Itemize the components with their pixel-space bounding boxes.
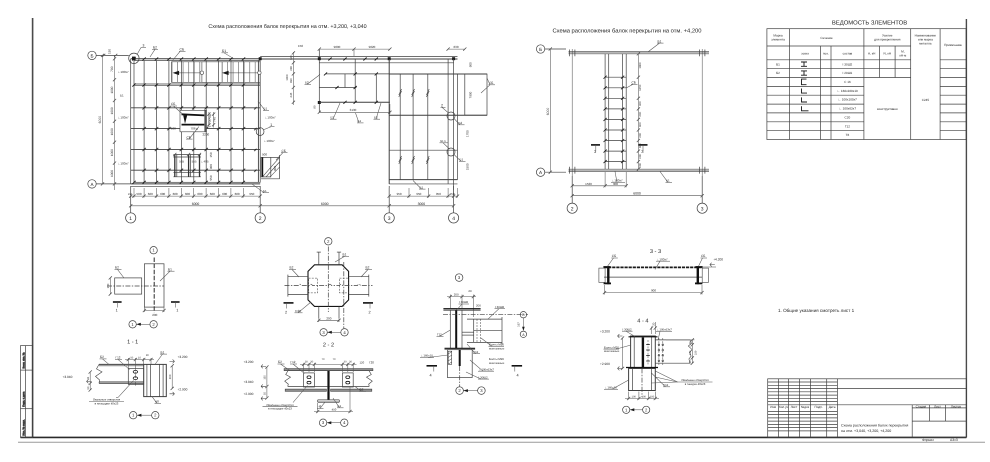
- svg-text:120: 120: [360, 360, 365, 364]
- svg-text:в площадке 40х23: в площадке 40х23: [268, 407, 292, 411]
- svg-text:А3х3: А3х3: [950, 438, 958, 442]
- svg-text:4: 4: [430, 374, 432, 378]
- svg-text:∟100х7: ∟100х7: [118, 70, 129, 74]
- svg-text:600: 600: [638, 111, 642, 116]
- svg-text:Б1: Б1: [120, 94, 124, 98]
- svg-text:Б1: Б1: [222, 49, 226, 53]
- svg-text:монтажные: монтажные: [604, 349, 620, 353]
- svg-text:645: 645: [289, 92, 293, 97]
- svg-text:Лист: Лист: [934, 404, 941, 408]
- svg-text:200: 200: [454, 293, 459, 297]
- svg-text:Б1: Б1: [658, 39, 662, 43]
- svg-text:Б1: Б1: [460, 158, 464, 162]
- svg-text:300: 300: [168, 374, 172, 379]
- svg-text:эскиз: эскиз: [801, 52, 809, 56]
- svg-text:Подп. и дата: Подп. и дата: [23, 391, 26, 407]
- svg-text:в гнездах 40х23: в гнездах 40х23: [685, 382, 706, 386]
- svg-text:600: 600: [638, 154, 642, 159]
- svg-text:∟485: ∟485: [201, 160, 209, 164]
- svg-text:1900: 1900: [638, 62, 642, 69]
- svg-text:Подп.: Подп.: [814, 405, 822, 409]
- svg-text:9620: 9620: [369, 45, 376, 49]
- svg-text:Схема расположения балок перек: Схема расположения балок перекрытия на о…: [208, 24, 366, 30]
- svg-text:I 30Ш2: I 30Ш2: [459, 300, 468, 304]
- svg-text:Г12: Г12: [664, 383, 669, 387]
- svg-text:+2.900: +2.900: [600, 362, 610, 366]
- svg-text:1000: 1000: [110, 128, 114, 135]
- svg-text:∟100х63х7: ∟100х63х7: [657, 328, 673, 332]
- svg-text:450: 450: [332, 408, 337, 412]
- svg-text:Б2: Б2: [153, 45, 157, 49]
- svg-text:∟ 100х100х7: ∟ 100х100х7: [838, 98, 857, 102]
- svg-text:140: 140: [289, 55, 293, 60]
- svg-text:Лист: Лист: [791, 405, 798, 409]
- svg-text:Изм: Изм: [770, 405, 776, 409]
- svg-text:1500: 1500: [465, 163, 469, 170]
- svg-text:600: 600: [638, 163, 642, 168]
- svg-text:6000: 6000: [633, 192, 641, 196]
- svg-text:1: 1: [129, 216, 132, 222]
- svg-text:∟100х7: ∟100х7: [264, 139, 275, 143]
- svg-text:Б: Б: [539, 47, 542, 52]
- svg-text:Т8: Т8: [846, 133, 850, 137]
- svg-text:2: 2: [369, 311, 371, 315]
- svg-text:150: 150: [209, 152, 213, 157]
- svg-text:140: 140: [689, 350, 692, 355]
- svg-text:1: 1: [116, 309, 118, 313]
- svg-text:3: 3: [143, 44, 145, 48]
- svg-text:220: 220: [695, 350, 698, 355]
- svg-text:3: 3: [388, 216, 391, 222]
- svg-text:600: 600: [638, 101, 642, 106]
- svg-text:1: 1: [176, 309, 178, 313]
- svg-text:Б2: Б2: [290, 266, 294, 270]
- svg-text:20: 20: [468, 289, 472, 293]
- svg-text:2: 2: [259, 216, 262, 222]
- svg-text:Г20: Г20: [369, 360, 374, 364]
- svg-text:550: 550: [209, 175, 213, 180]
- svg-text:+3.200: +3.200: [244, 360, 254, 364]
- svg-text:Стадия: Стадия: [916, 404, 927, 408]
- svg-text:Б: Б: [90, 53, 93, 58]
- svg-text:СБ: СБ: [171, 102, 175, 106]
- svg-text:6000: 6000: [192, 202, 200, 206]
- svg-text:20: 20: [652, 322, 656, 326]
- svg-text:2200: 2200: [203, 132, 210, 136]
- svg-text:N, кН: N, кН: [884, 52, 892, 56]
- svg-text:I 30Ш2: I 30Ш2: [495, 305, 504, 309]
- svg-text:Г12: Г12: [291, 360, 296, 364]
- svg-text:Дата: Дата: [829, 405, 836, 409]
- svg-text:+4.200: +4.200: [713, 257, 723, 261]
- svg-text:167: 167: [517, 322, 521, 327]
- svg-text:Схема расположения балок перек: Схема расположения балок перекрытия на о…: [552, 28, 701, 35]
- svg-text:Б1: Б1: [161, 350, 165, 354]
- svg-text:I 30Ш2: I 30Ш2: [843, 62, 853, 66]
- svg-text:монтажные: монтажные: [489, 346, 505, 350]
- svg-text:Б1: Б1: [264, 107, 268, 111]
- svg-text:1000: 1000: [110, 107, 114, 114]
- svg-text:1000: 1000: [110, 170, 114, 177]
- svg-text:в площадке 40х23: в площадке 40х23: [95, 401, 119, 405]
- svg-text:706▲: 706▲: [191, 127, 199, 131]
- svg-text:2: 2: [441, 104, 443, 108]
- svg-text:4: 4: [452, 216, 455, 222]
- svg-text:740: 740: [212, 117, 216, 122]
- svg-text:Б2: Б2: [366, 266, 370, 270]
- svg-text:Б1: Б1: [343, 253, 347, 257]
- svg-text:600: 600: [197, 192, 202, 196]
- svg-text:1000: 1000: [110, 149, 114, 156]
- svg-text:+2.900: +2.900: [178, 387, 188, 391]
- svg-text:150: 150: [449, 192, 454, 196]
- svg-text:+3.040: +3.040: [63, 375, 73, 379]
- svg-text:ВЕДОМОСТЬ ЗЛЕМЕНТОВ: ВЕДОМОСТЬ ЗЛЕМЕНТОВ: [832, 19, 907, 26]
- svg-text:+3.200: +3.200: [178, 355, 188, 359]
- svg-text:690: 690: [289, 78, 293, 83]
- svg-text:Листов: Листов: [951, 404, 961, 408]
- svg-text:1530: 1530: [585, 182, 592, 186]
- svg-text:Г12: Г12: [116, 356, 121, 360]
- svg-text:∟100х7: ∟100х7: [118, 116, 129, 120]
- svg-text:+3.200: +3.200: [600, 330, 610, 334]
- svg-text:∟100х7: ∟100х7: [657, 257, 668, 261]
- svg-text:7900: 7900: [468, 91, 472, 98]
- svg-text:950: 950: [436, 192, 441, 196]
- svg-text:Б2: Б2: [459, 121, 463, 125]
- svg-text:4: 4: [517, 374, 519, 378]
- svg-text:Взам. инв. №: Взам. инв. №: [23, 352, 26, 368]
- svg-text:Б2: Б2: [305, 81, 309, 85]
- svg-text:Примечание: Примечание: [944, 43, 962, 47]
- svg-text:∟ 100х63х7: ∟ 100х63х7: [839, 107, 857, 111]
- svg-text:I 30Ш2: I 30Ш2: [623, 327, 632, 331]
- svg-text:кН·м: кН·м: [900, 54, 907, 58]
- svg-text:950: 950: [397, 192, 402, 196]
- svg-text:1000: 1000: [110, 86, 114, 93]
- svg-text:630: 630: [453, 45, 458, 49]
- svg-text:Г12: Г12: [845, 124, 850, 128]
- svg-text:6000: 6000: [321, 202, 329, 206]
- svg-text:1250: 1250: [638, 84, 642, 91]
- svg-text:1300: 1300: [285, 74, 289, 81]
- svg-text:150: 150: [298, 44, 303, 48]
- svg-text:∟100х7: ∟100х7: [265, 115, 276, 119]
- svg-text:1700: 1700: [465, 130, 469, 137]
- svg-text:9600: 9600: [334, 45, 341, 49]
- svg-text:200: 200: [152, 313, 157, 317]
- svg-text:+3.040: +3.040: [244, 380, 254, 384]
- svg-text:600: 600: [185, 192, 190, 196]
- svg-text:900: 900: [209, 164, 213, 169]
- svg-text:600: 600: [210, 192, 215, 196]
- svg-text:500: 500: [171, 127, 176, 131]
- svg-text:3: 3: [701, 206, 704, 212]
- svg-text:135: 135: [264, 375, 267, 380]
- svg-text:950: 950: [249, 192, 254, 196]
- svg-text:100: 100: [650, 396, 655, 399]
- svg-text:1: 1: [270, 123, 272, 127]
- svg-text:150: 150: [108, 49, 112, 54]
- svg-text:Б2: Б2: [100, 355, 104, 359]
- svg-text:Б2: Б2: [278, 360, 282, 364]
- svg-text:∟100х7: ∟100х7: [118, 161, 129, 165]
- svg-text:С245: С245: [922, 98, 930, 102]
- svg-text:2 - 2: 2 - 2: [323, 343, 334, 349]
- svg-text:3130: 3130: [350, 108, 357, 112]
- svg-text:150: 150: [106, 283, 110, 288]
- svg-text:монтажные: монтажные: [489, 361, 505, 365]
- svg-text:Н8: Н8: [318, 405, 322, 409]
- svg-text:С 16: С 16: [844, 80, 851, 84]
- svg-text:900: 900: [613, 182, 618, 186]
- svg-text:СБ: СБ: [180, 48, 185, 52]
- svg-text:Формат: Формат: [922, 438, 934, 442]
- svg-text:6000: 6000: [98, 116, 102, 124]
- svg-text:200: 200: [476, 304, 481, 308]
- svg-text:4 - 4: 4 - 4: [637, 318, 648, 324]
- svg-text:СБ: СБ: [612, 254, 616, 258]
- svg-text:900: 900: [468, 62, 472, 67]
- svg-text:555: 555: [192, 160, 197, 164]
- svg-text:2: 2: [571, 206, 574, 212]
- svg-text:поз.: поз.: [823, 52, 829, 56]
- svg-text:600: 600: [148, 192, 153, 196]
- svg-text:100: 100: [642, 396, 647, 399]
- svg-text:Б1: Б1: [776, 62, 780, 66]
- svg-text:555: 555: [179, 160, 184, 164]
- svg-text:500: 500: [262, 153, 267, 157]
- svg-text:200: 200: [326, 316, 331, 320]
- svg-text:Сечение: Сечение: [820, 36, 833, 40]
- svg-text:900: 900: [273, 166, 277, 171]
- svg-text:по 1: по 1: [440, 139, 446, 143]
- svg-text:I 20Ш1: I 20Ш1: [843, 71, 853, 75]
- svg-text:конструктивно: конструктивно: [877, 107, 898, 111]
- svg-text:80: 80: [313, 105, 317, 109]
- svg-text:на отм. +3,040, +3,200, +4,200: на отм. +3,040, +3,200, +4,200: [841, 429, 891, 433]
- svg-text:№док: №док: [801, 405, 810, 409]
- svg-text:СБ: СБ: [282, 149, 286, 153]
- svg-text:1. Общие указания смотреть лис: 1. Общие указания смотреть лист 1: [778, 308, 855, 313]
- svg-text:Инв. № подл.: Инв. № подл.: [23, 419, 26, 435]
- svg-text:950: 950: [416, 192, 421, 196]
- svg-text:Б2: Б2: [776, 71, 780, 75]
- svg-text:600: 600: [638, 133, 642, 138]
- svg-text:600: 600: [638, 122, 642, 127]
- svg-text:Б2: Б2: [115, 266, 119, 270]
- svg-text:100: 100: [632, 396, 637, 399]
- svg-text:∟ 160х160х10: ∟ 160х160х10: [837, 89, 858, 93]
- svg-text:элемента: элемента: [771, 38, 785, 42]
- svg-text:Кол.уч: Кол.уч: [779, 405, 789, 409]
- svg-text:6000: 6000: [546, 108, 550, 116]
- svg-text:500: 500: [136, 192, 141, 196]
- svg-text:1 - 1: 1 - 1: [127, 340, 138, 346]
- svg-text:металла: металла: [919, 42, 931, 46]
- svg-text:150: 150: [128, 193, 133, 196]
- svg-text:600: 600: [173, 192, 178, 196]
- svg-text:Схема расположения балок перек: Схема расположения балок перекрытия: [841, 424, 908, 428]
- svg-text:состав: состав: [843, 52, 853, 56]
- svg-text:Б2: Б2: [360, 388, 364, 392]
- svg-text:С20: С20: [845, 115, 851, 119]
- svg-text:Г12: Г12: [437, 333, 442, 337]
- svg-text:А, кН: А, кН: [868, 52, 875, 56]
- svg-text:СБ: СБ: [701, 254, 705, 258]
- svg-text:900: 900: [651, 289, 656, 293]
- svg-text:600: 600: [222, 192, 227, 196]
- svg-text:2: 2: [285, 311, 287, 315]
- svg-text:+2.900: +2.900: [244, 392, 254, 396]
- svg-text:для прикрепления: для прикрепления: [874, 38, 901, 42]
- svg-text:600: 600: [160, 192, 165, 196]
- svg-text:Б1: Б1: [168, 267, 172, 271]
- svg-text:690: 690: [289, 66, 293, 71]
- svg-text:600: 600: [235, 192, 240, 196]
- svg-text:СБ: СБ: [632, 81, 636, 85]
- svg-text:700: 700: [110, 66, 114, 72]
- svg-text:3 - 3: 3 - 3: [650, 249, 661, 255]
- svg-text:3000: 3000: [418, 202, 426, 206]
